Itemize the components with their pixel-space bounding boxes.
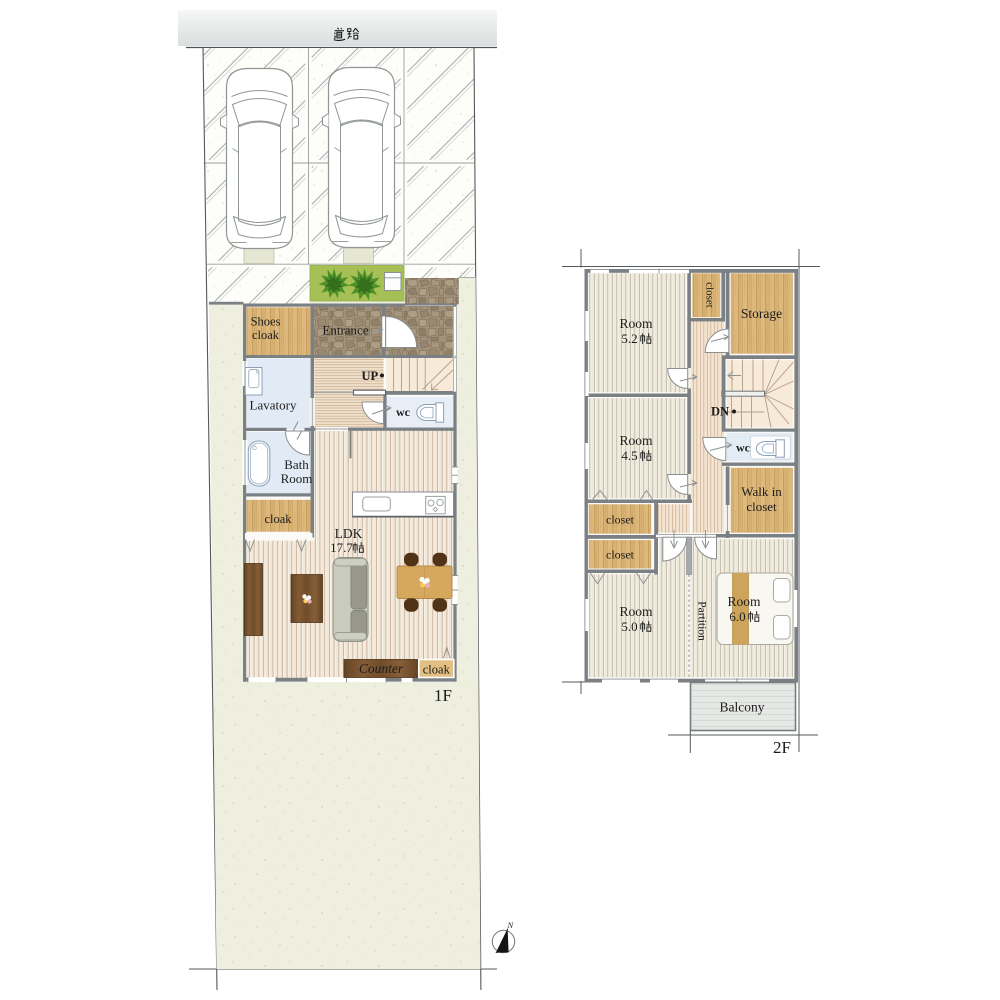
svg-text:closet: closet — [606, 513, 635, 527]
svg-text:17.7: 17.7 — [330, 540, 353, 555]
svg-text:Room: Room — [619, 316, 653, 331]
svg-text:wc: wc — [736, 441, 751, 455]
svg-text:Walk in: Walk in — [741, 484, 782, 499]
svg-text:Partition: Partition — [696, 601, 708, 641]
svg-text:5.2: 5.2 — [621, 331, 637, 346]
svg-text:1F: 1F — [434, 686, 452, 705]
svg-text:UP: UP — [362, 369, 379, 383]
svg-text:2F: 2F — [773, 738, 791, 757]
svg-text:cloak: cloak — [264, 512, 292, 526]
svg-text:closet: closet — [746, 499, 777, 514]
svg-text:closet: closet — [704, 282, 716, 308]
svg-text:6.0: 6.0 — [729, 609, 745, 624]
svg-text:cloak: cloak — [423, 663, 451, 677]
svg-text:5.0: 5.0 — [621, 619, 637, 634]
svg-text:Shoes: Shoes — [251, 315, 281, 329]
svg-text:wc: wc — [396, 405, 411, 419]
svg-text:cloak: cloak — [252, 328, 280, 342]
svg-text:Storage: Storage — [741, 306, 782, 321]
svg-text:Lavatory: Lavatory — [250, 398, 297, 413]
svg-text:LDK: LDK — [335, 526, 363, 541]
svg-text:closet: closet — [606, 548, 635, 562]
svg-text:DN: DN — [711, 405, 729, 419]
svg-text:Room: Room — [619, 433, 653, 448]
svg-text:Bath: Bath — [284, 457, 309, 472]
svg-text:Counter: Counter — [359, 661, 404, 676]
svg-text:4.5: 4.5 — [621, 448, 637, 463]
svg-text:Balcony: Balcony — [720, 700, 765, 715]
svg-text:Room: Room — [727, 594, 761, 609]
svg-text:Room: Room — [281, 471, 313, 486]
svg-text:Room: Room — [619, 604, 653, 619]
svg-text:Entrance: Entrance — [322, 323, 368, 338]
